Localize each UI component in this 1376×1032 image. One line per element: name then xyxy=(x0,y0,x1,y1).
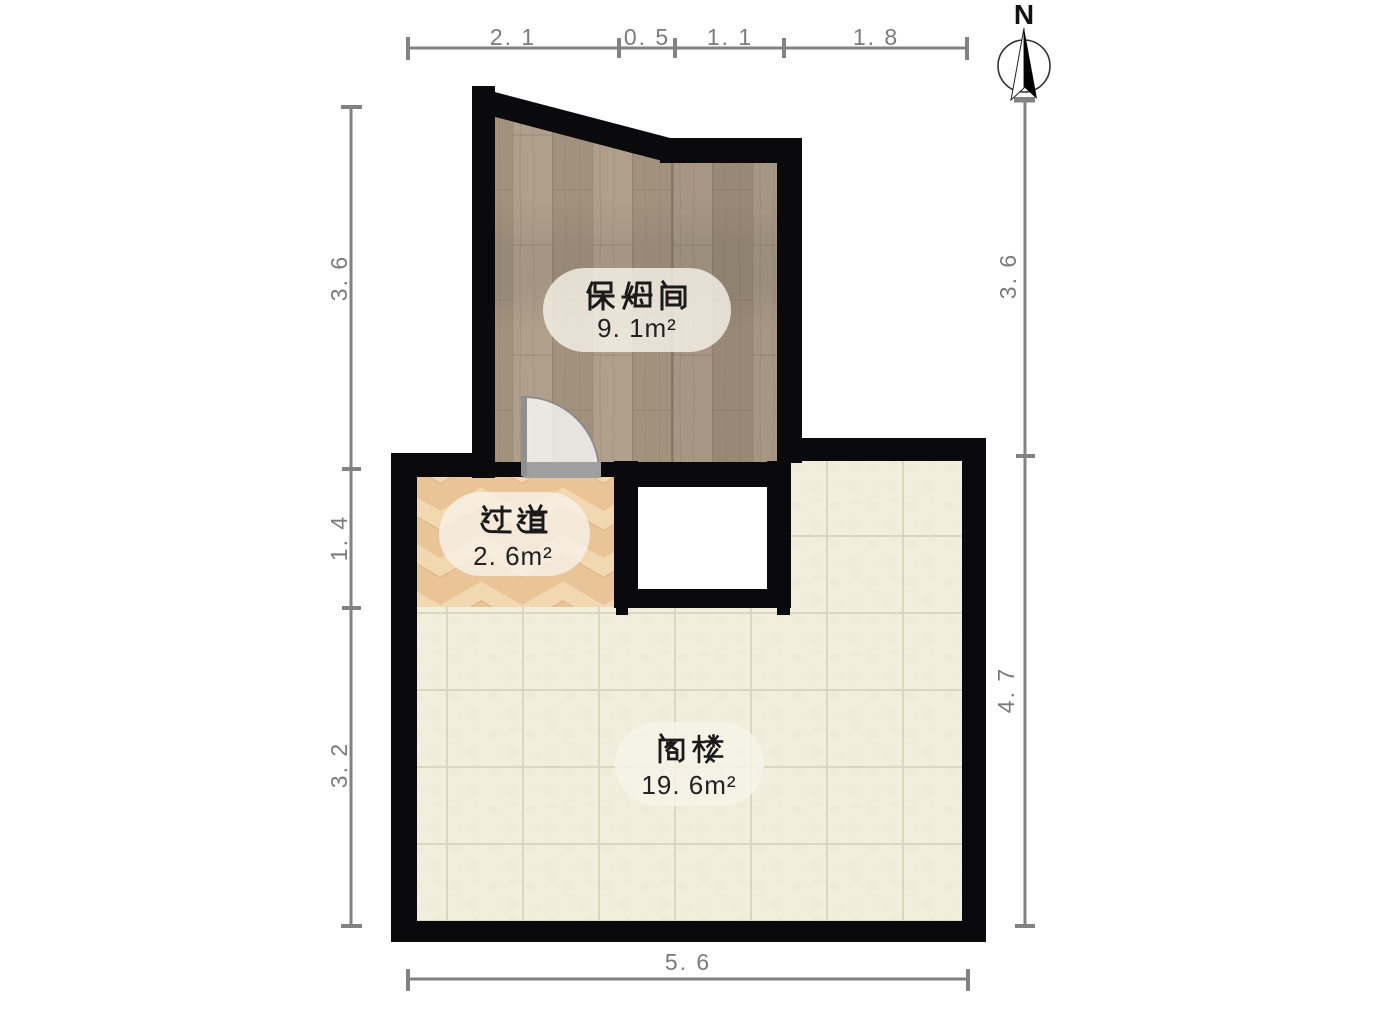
svg-text:3. 6: 3. 6 xyxy=(995,253,1021,299)
svg-text:0. 5: 0. 5 xyxy=(624,24,670,50)
svg-text:1. 1: 1. 1 xyxy=(707,24,753,50)
svg-text:5. 6: 5. 6 xyxy=(665,949,711,975)
svg-text:3. 2: 3. 2 xyxy=(326,742,352,788)
svg-text:2. 1: 2. 1 xyxy=(490,24,536,50)
svg-text:9. 1m²: 9. 1m² xyxy=(597,313,677,343)
svg-text:3. 6: 3. 6 xyxy=(326,255,352,301)
svg-text:4. 7: 4. 7 xyxy=(993,667,1019,713)
svg-text:1. 8: 1. 8 xyxy=(853,24,899,50)
svg-text:N: N xyxy=(1014,0,1034,30)
svg-text:1. 4: 1. 4 xyxy=(326,515,352,561)
svg-text:2. 6m²: 2. 6m² xyxy=(473,541,553,571)
svg-text:19. 6m²: 19. 6m² xyxy=(641,770,736,800)
